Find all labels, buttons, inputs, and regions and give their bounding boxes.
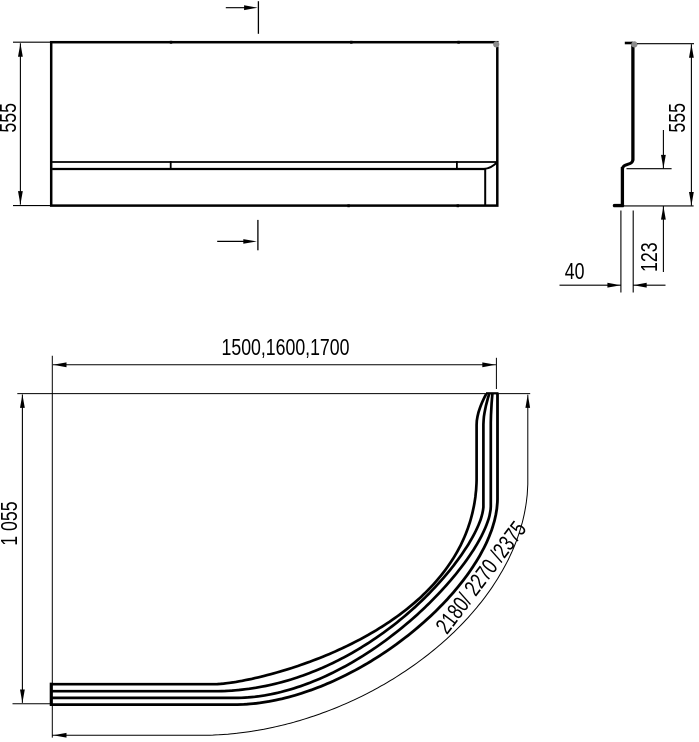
svg-text:123: 123 [637, 242, 663, 272]
svg-text:555: 555 [665, 103, 691, 133]
svg-text:555: 555 [0, 103, 21, 133]
svg-text:1500,1600,1700: 1500,1600,1700 [222, 335, 350, 361]
svg-text:1 055: 1 055 [0, 501, 23, 545]
svg-text:40: 40 [565, 259, 585, 285]
